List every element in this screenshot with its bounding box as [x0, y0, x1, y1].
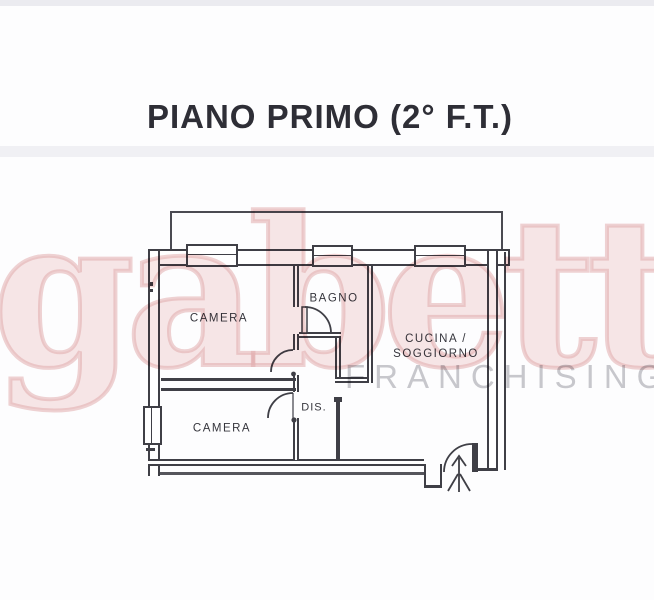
- bagno-door-leaf: [302, 307, 307, 333]
- room-label-camera-bottom: CAMERA: [193, 422, 251, 437]
- camera-bottom-door-arc: [268, 393, 293, 418]
- camera-top-door-hinge: [291, 372, 296, 377]
- bagno-door-arc: [305, 307, 331, 333]
- camera-top-door-arc: [271, 350, 293, 372]
- room-label-camera-top: CAMERA: [190, 312, 248, 327]
- room-label-dis: DIS.: [301, 401, 326, 416]
- room-label-cucina-soggiorno: CUCINA / SOGGIORNO: [393, 332, 479, 362]
- entrance-door-leaf: [472, 443, 478, 472]
- room-label-cucina-line1: CUCINA /: [393, 332, 479, 347]
- scanned-floorplan-page: PIANO PRIMO (2° F.T.): [0, 0, 654, 600]
- room-label-cucina-line2: SOGGIORNO: [393, 347, 479, 362]
- camera-bottom-door-hinge: [291, 417, 296, 422]
- room-label-bagno: BAGNO: [309, 292, 358, 307]
